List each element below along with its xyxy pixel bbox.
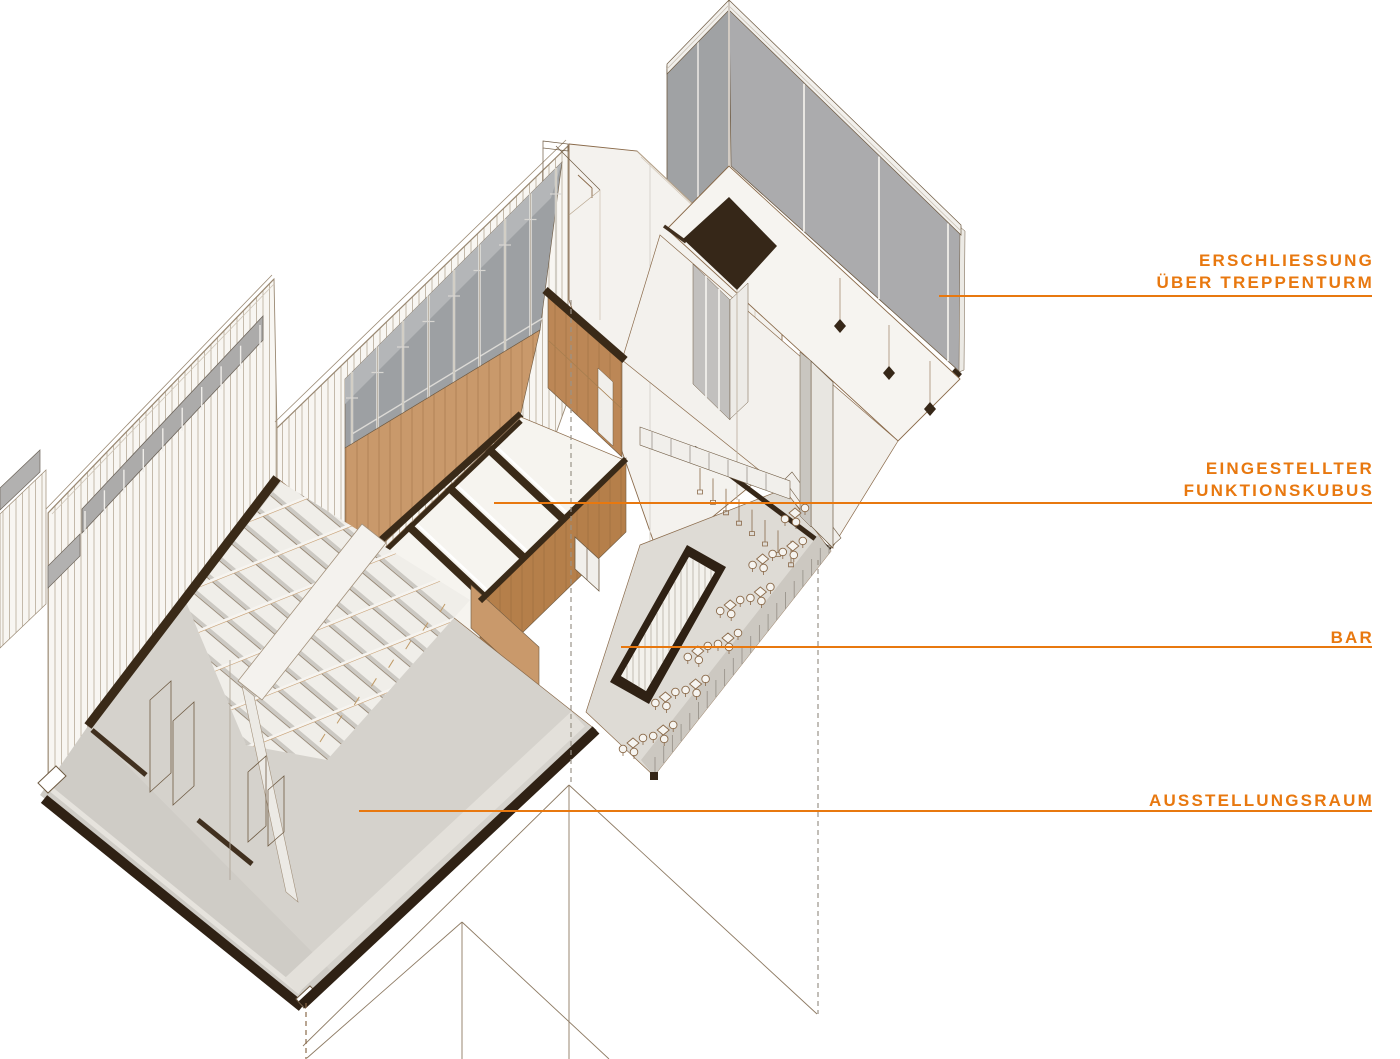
svg-text:EINGESTELLTER: EINGESTELLTER xyxy=(1206,459,1374,478)
svg-text:ÜBER TREPPENTURM: ÜBER TREPPENTURM xyxy=(1157,273,1375,292)
svg-text:FUNKTIONSKUBUS: FUNKTIONSKUBUS xyxy=(1184,481,1374,500)
svg-text:BAR: BAR xyxy=(1331,628,1374,647)
svg-text:AUSSTELLUNGSRAUM: AUSSTELLUNGSRAUM xyxy=(1149,791,1374,810)
svg-text:ERSCHLIESSUNG: ERSCHLIESSUNG xyxy=(1199,251,1374,270)
